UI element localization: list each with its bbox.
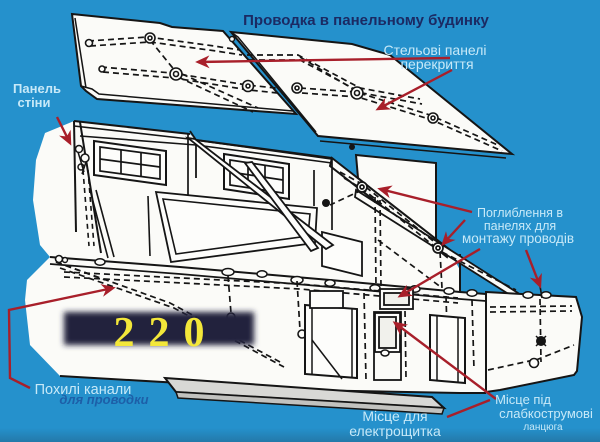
svg-text:Місце для: Місце для <box>362 408 427 424</box>
svg-text:перекриття: перекриття <box>400 56 473 72</box>
svg-text:монтажу проводів: монтажу проводів <box>462 231 574 246</box>
svg-text:Поглиблення в: Поглиблення в <box>477 206 563 220</box>
svg-text:слабкострумові: слабкострумові <box>499 406 593 421</box>
svg-text:стіни: стіни <box>17 95 50 110</box>
svg-text:Місце під: Місце під <box>495 392 551 407</box>
svg-text:ланцюга: ланцюга <box>523 422 563 433</box>
svg-text:Проводка в панельному будинку: Проводка в панельному будинку <box>243 12 489 29</box>
svg-text:для проводки: для проводки <box>59 392 148 407</box>
svg-text:Панель: Панель <box>13 81 61 96</box>
svg-text:електрощитка: електрощитка <box>349 423 441 439</box>
svg-text:220: 220 <box>114 310 219 356</box>
